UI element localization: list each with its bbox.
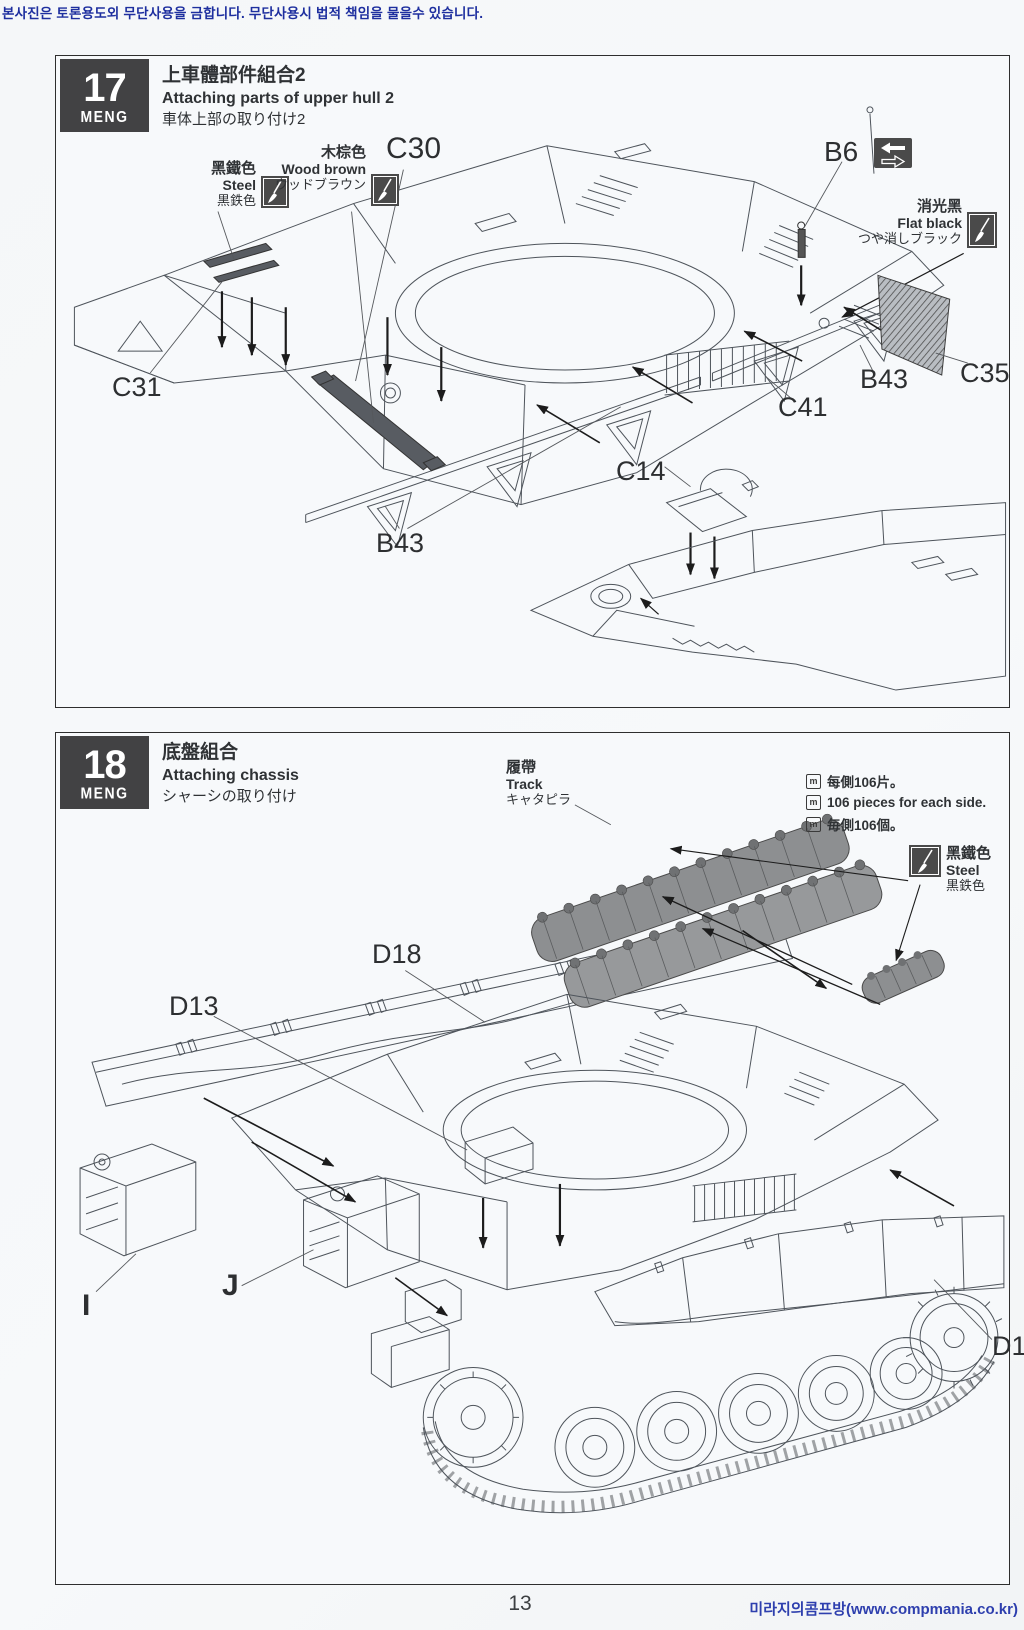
part-label: C31 xyxy=(112,372,162,403)
part-label: D13 xyxy=(169,991,219,1022)
c35-panel xyxy=(878,275,950,375)
step-18-drawing xyxy=(56,733,1009,1584)
step-18-panel: 18 MENG 底盤組合 Attaching chassis シャーシの取り付け xyxy=(55,732,1010,1585)
part-label: B43 xyxy=(376,528,424,559)
parts-boxes xyxy=(80,1127,533,1387)
part-label: D1 xyxy=(992,1331,1024,1362)
copyright-watermark: 본사진은 토론용도외 무단사용을 금합니다. 무단사용시 법적 책임을 물을수 … xyxy=(2,2,483,22)
instruction-page: 본사진은 토론용도외 무단사용을 금합니다. 무단사용시 법적 책임을 물을수 … xyxy=(0,0,1024,1630)
paintbrush-icon xyxy=(909,845,941,877)
track-segment xyxy=(857,943,948,1007)
note-row: m 毎側106個。 xyxy=(806,814,986,834)
track-quantity-notes: m 每側106片。 m 106 pieces for each side. m … xyxy=(806,771,986,834)
note-icon: m xyxy=(806,795,821,810)
part-label: C14 xyxy=(616,456,666,487)
lower-hull-partial xyxy=(531,503,1006,690)
step-17-panel: 17 MENG 上車體部件組合2 Attaching parts of uppe… xyxy=(55,55,1010,708)
side-skirt-right xyxy=(595,1216,1004,1326)
paint-callout-flat-black: 消光黑 Flat black つや消しブラック xyxy=(820,198,997,248)
paint-callout-steel: 黑鐵色 Steel 黒鉄色 xyxy=(909,845,991,894)
small-parts xyxy=(204,222,950,532)
assembly-arrows xyxy=(222,253,964,614)
part-label: D18 xyxy=(372,939,422,970)
part-label: I xyxy=(82,1289,90,1323)
part-label: B43 xyxy=(860,364,908,395)
part-label: J xyxy=(222,1269,239,1303)
track-callout: 履帶 Track キャタピラ xyxy=(506,759,571,808)
track-assembly xyxy=(526,805,948,1016)
part-label: C41 xyxy=(778,392,828,423)
site-watermark: 미라지의콤프방(www.compmania.co.kr) xyxy=(749,1598,1018,1619)
part-label: B6 xyxy=(824,136,858,168)
both-sides-arrows-icon xyxy=(874,138,912,168)
note-icon: m xyxy=(806,774,821,789)
part-label: C35 xyxy=(960,358,1010,389)
hull-art xyxy=(232,994,938,1289)
paintbrush-icon xyxy=(967,212,997,248)
note-row: m 106 pieces for each side. xyxy=(806,795,986,810)
part-label: C30 xyxy=(386,132,441,166)
running-gear xyxy=(423,1287,1005,1513)
note-icon: m xyxy=(806,817,821,832)
paintbrush-icon xyxy=(371,174,399,206)
note-row: m 每側106片。 xyxy=(806,771,986,791)
paint-callout-wood-brown: 木棕色 Wood brown ウッドブラウン xyxy=(254,144,399,206)
page-number: 13 xyxy=(470,1592,570,1616)
